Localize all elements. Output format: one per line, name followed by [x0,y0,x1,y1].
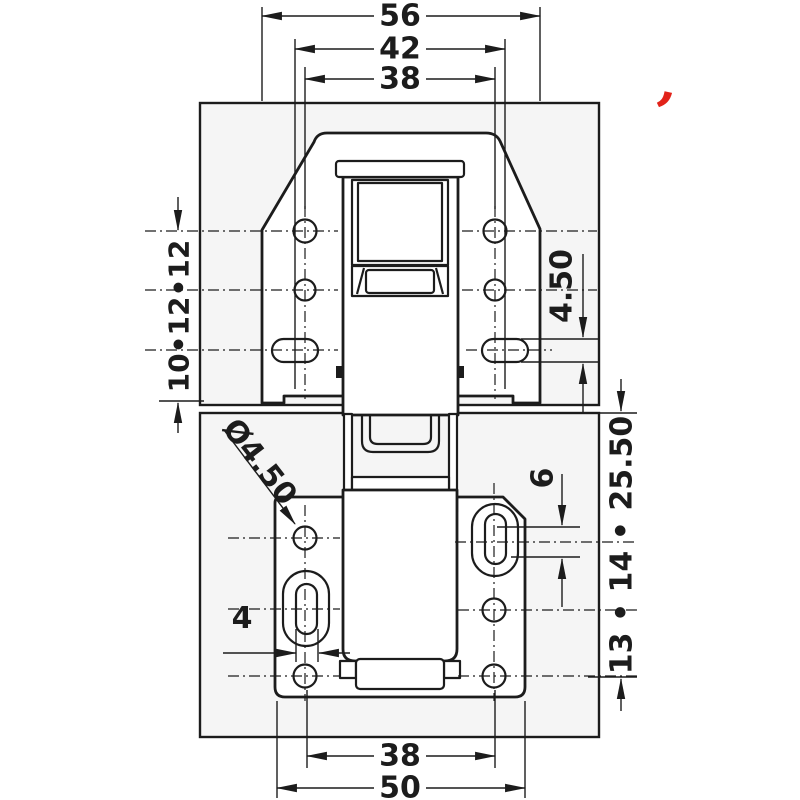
arm-nub-right [457,366,464,378]
hinge-cup-inner [358,183,442,261]
dim-right-chain-label: 13 • 14 • 25.50 [605,416,640,675]
hinge-cup-cap [336,161,464,177]
arm-foot-tab-right [444,661,460,678]
logo-mark-icon: ’ [645,78,679,149]
dim-6-label: 6 [526,468,561,489]
technical-drawing-canvas: 56 42 38 10•12•12 4.50 13 • 14 • 25 [0,0,800,800]
dim-38-bottom-label: 38 [379,739,421,774]
dimension-left-chain: 10•12•12 [159,197,204,433]
arm-foot [356,659,444,689]
dim-38-top-label: 38 [379,62,421,97]
arm-foot-tab-left [340,661,356,678]
hinge-drawing: 56 42 38 10•12•12 4.50 13 • 14 • 25 [0,0,800,800]
hinge-arm-lower-band [343,490,457,661]
dim-450-label: 4.50 [545,249,580,323]
dim-56-label: 56 [379,0,421,34]
vertical-slot-inner [485,514,506,564]
arm-nub-left [336,366,343,378]
adjustment-slider [366,270,434,293]
dim-left-chain-label: 10•12•12 [163,240,196,393]
dim-50-label: 50 [379,771,421,800]
dim-4-label: 4 [232,601,253,636]
